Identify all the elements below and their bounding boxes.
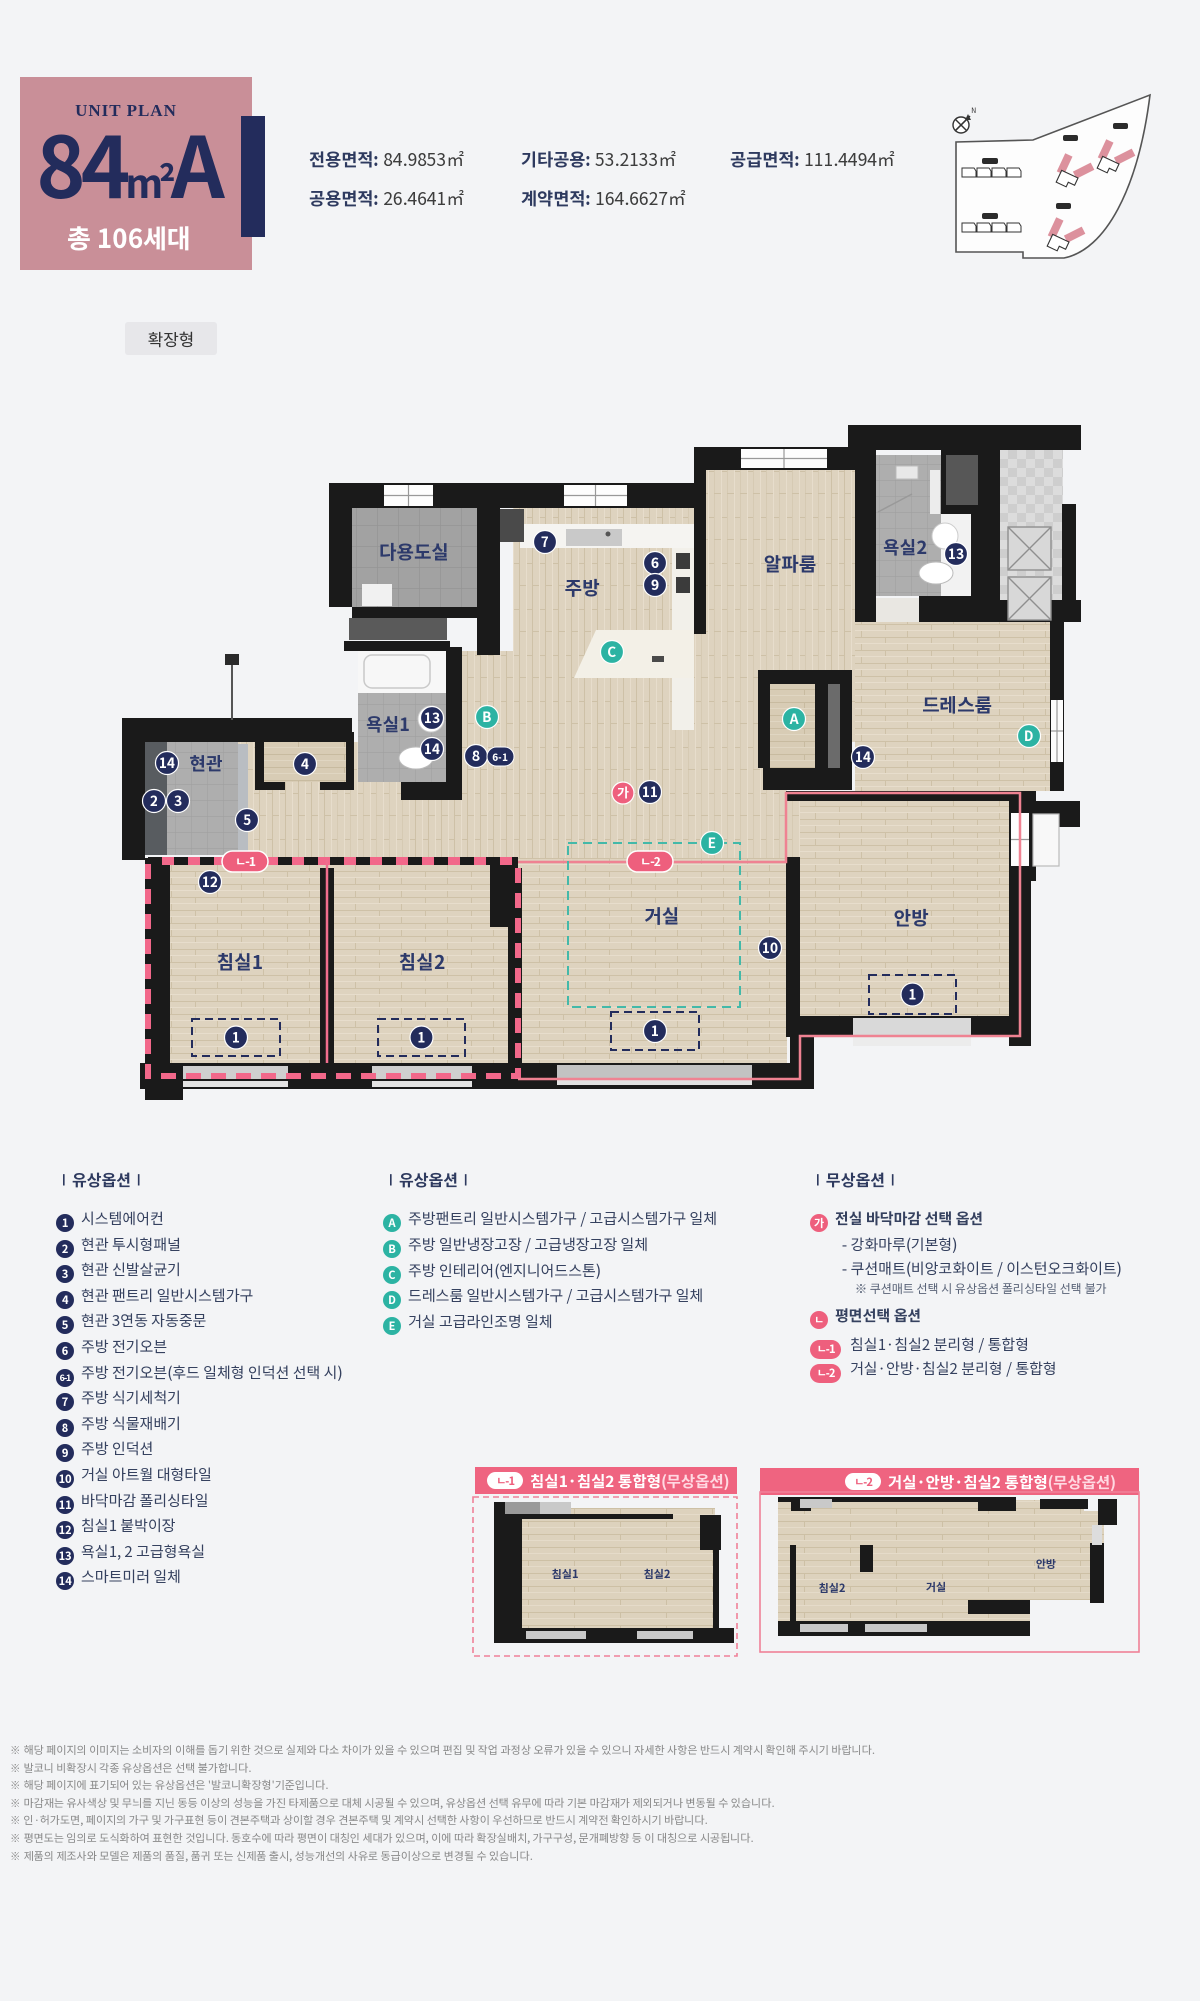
svg-text:침실2: 침실2 (399, 948, 445, 975)
svg-text:현관: 현관 (189, 750, 222, 776)
svg-text:6-1: 6-1 (492, 749, 508, 764)
svg-text:E: E (708, 832, 716, 852)
svg-text:10: 10 (762, 937, 778, 957)
svg-text:거실: 거실 (645, 902, 680, 929)
svg-text:거실·안방·침실2 통합형(무상옵션): 거실·안방·침실2 통합형(무상옵션) (888, 1471, 1116, 1493)
svg-text:1: 1 (232, 1026, 240, 1046)
svg-text:2: 2 (150, 790, 158, 810)
svg-text:4: 4 (301, 753, 310, 773)
svg-text:안방: 안방 (894, 904, 929, 931)
svg-text:침실2: 침실2 (819, 1580, 846, 1596)
svg-text:다용도실: 다용도실 (379, 538, 449, 565)
svg-text:7: 7 (541, 531, 549, 551)
svg-text:ㄴ-1: ㄴ-1 (496, 1473, 514, 1489)
svg-text:1: 1 (651, 1020, 659, 1040)
svg-text:13: 13 (948, 543, 964, 563)
svg-text:B: B (482, 706, 491, 726)
svg-text:침실1: 침실1 (217, 948, 263, 975)
svg-text:C: C (608, 641, 617, 661)
svg-text:6: 6 (651, 552, 659, 572)
svg-text:9: 9 (651, 574, 659, 594)
svg-text:14: 14 (159, 752, 176, 772)
svg-text:안방: 안방 (1036, 1556, 1056, 1572)
svg-text:ㄴ-2: ㄴ-2 (640, 853, 660, 870)
svg-text:거실: 거실 (926, 1579, 946, 1595)
svg-text:1: 1 (417, 1026, 425, 1046)
svg-text:ㄴ-1: ㄴ-1 (235, 853, 255, 870)
svg-text:A: A (790, 708, 800, 728)
svg-text:주방: 주방 (565, 574, 600, 601)
svg-text:ㄴ-2: ㄴ-2 (854, 1474, 872, 1490)
svg-text:11: 11 (642, 781, 658, 801)
svg-text:D: D (1024, 725, 1034, 745)
svg-text:13: 13 (424, 707, 440, 727)
svg-text:드레스룸: 드레스룸 (922, 691, 992, 718)
svg-text:1: 1 (908, 983, 916, 1003)
svg-text:14: 14 (424, 738, 441, 758)
svg-text:5: 5 (243, 809, 251, 829)
svg-text:3: 3 (174, 790, 182, 810)
svg-text:가: 가 (617, 783, 629, 802)
svg-text:N: N (971, 106, 976, 116)
svg-text:침실1: 침실1 (552, 1566, 579, 1582)
svg-text:침실1·침실2 통합형(무상옵션): 침실1·침실2 통합형(무상옵션) (530, 1470, 730, 1492)
svg-text:8: 8 (472, 745, 481, 765)
svg-text:12: 12 (202, 871, 218, 891)
svg-text:침실2: 침실2 (644, 1566, 671, 1582)
svg-text:욕실2: 욕실2 (883, 534, 927, 560)
svg-text:욕실1: 욕실1 (366, 711, 410, 737)
svg-text:14: 14 (855, 746, 872, 766)
svg-text:알파룸: 알파룸 (764, 550, 816, 577)
